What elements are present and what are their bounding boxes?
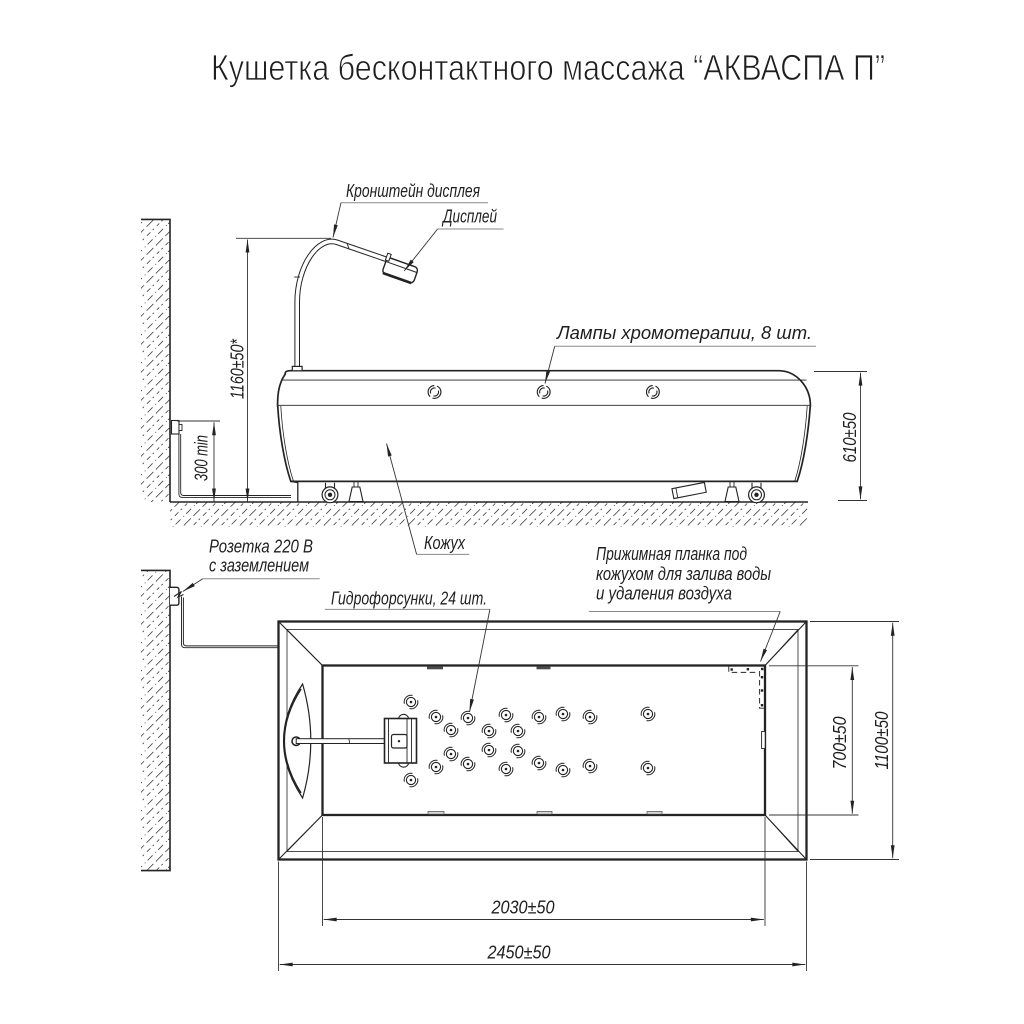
svg-text:Кушетка бесконтактного массажа: Кушетка бесконтактного массажа “АКВАСПА … <box>211 47 885 88</box>
svg-text:кожухом для залива воды: кожухом для залива воды <box>596 563 771 584</box>
svg-text:Кронштейн дисплея: Кронштейн дисплея <box>346 180 480 201</box>
svg-text:с заземлением: с заземлением <box>209 555 309 576</box>
svg-text:Дисплей: Дисплей <box>442 206 497 227</box>
svg-text:1160±50*: 1160±50* <box>227 338 248 399</box>
svg-text:700±50: 700±50 <box>829 716 850 770</box>
svg-text:и удаления воздуха: и удаления воздуха <box>596 583 732 604</box>
svg-text:610±50: 610±50 <box>839 412 860 463</box>
svg-text:Прижимная планка под: Прижимная планка под <box>596 543 747 564</box>
svg-text:Розетка 220 В: Розетка 220 В <box>209 536 313 557</box>
svg-text:1100±50: 1100±50 <box>871 711 892 770</box>
svg-text:2450±50: 2450±50 <box>487 942 551 963</box>
svg-text:300 min: 300 min <box>191 435 212 481</box>
svg-text:Лампы хромотерапии, 8 шт.: Лампы хромотерапии, 8 шт. <box>556 322 812 343</box>
svg-text:2030±50: 2030±50 <box>491 897 555 918</box>
svg-text:Гидрофорсунки, 24 шт.: Гидрофорсунки, 24 шт. <box>331 588 487 609</box>
svg-text:Кожух: Кожух <box>424 532 466 553</box>
